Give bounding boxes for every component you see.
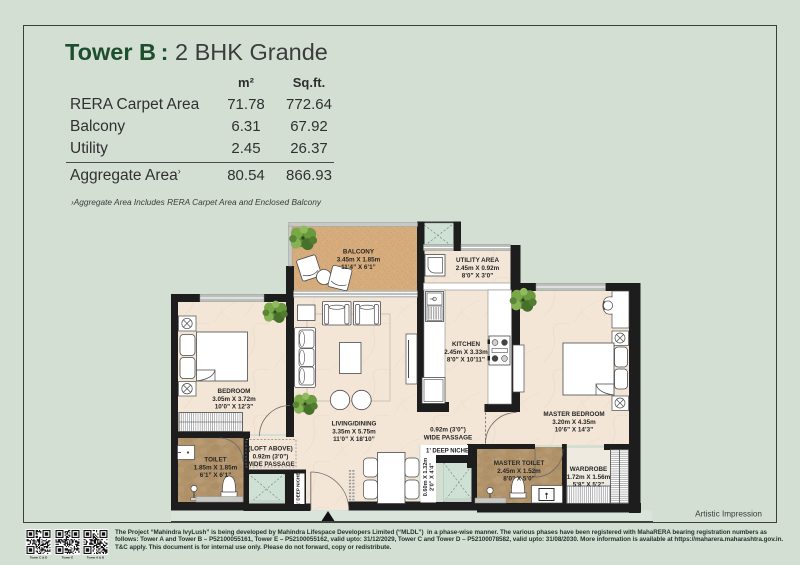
svg-text:Tower A & B: Tower A & B (87, 556, 105, 560)
svg-text:0.60m X 1.32m: 0.60m X 1.32m (423, 458, 429, 497)
svg-text:(LOFT ABOVE): (LOFT ABOVE) (248, 446, 293, 453)
svg-text:8’0” X 3’0”: 8’0” X 3’0” (462, 273, 494, 280)
svg-text:11’0” X 18’10”: 11’0” X 18’10” (333, 436, 375, 443)
svg-text:MASTER BEDROOM: MASTER BEDROOM (543, 411, 604, 418)
svg-text:8’0” X 10’11”: 8’0” X 10’11” (447, 357, 485, 364)
svg-text:5’8” X 5’2”: 5’8” X 5’2” (573, 482, 605, 489)
svg-text:LIVING/DINING: LIVING/DINING (332, 421, 377, 428)
svg-text:Artistic Impression: Artistic Impression (695, 510, 762, 519)
svg-text:WIDE PASSAGE: WIDE PASSAGE (424, 434, 473, 441)
svg-text:MASTER TOILET: MASTER TOILET (494, 460, 545, 467)
svg-text:3.05m X 3.72m: 3.05m X 3.72m (212, 396, 256, 403)
svg-text:3.20m X 4.35m: 3.20m X 4.35m (552, 419, 596, 426)
svg-text:1.85m X 1.85m: 1.85m X 1.85m (194, 464, 238, 471)
svg-text:10’0” X 12’3”: 10’0” X 12’3” (215, 404, 254, 411)
svg-text:WIDE PASSAGE: WIDE PASSAGE (246, 461, 295, 468)
svg-text:TOILET: TOILET (204, 457, 226, 464)
svg-text:WARDROBE: WARDROBE (570, 466, 607, 473)
svg-text:3.45m X 1.85m: 3.45m X 1.85m (337, 256, 381, 263)
svg-text:11’4” X 6’1”: 11’4” X 6’1” (341, 264, 376, 271)
svg-text:KITCHEN: KITCHEN (452, 341, 480, 348)
svg-text:10’6” X 14’3”: 10’6” X 14’3” (555, 427, 594, 434)
svg-text:1’ DEEP NICHE: 1’ DEEP NICHE (296, 473, 301, 506)
svg-text:UTILITY AREA: UTILITY AREA (456, 257, 499, 264)
svg-text:2.45m X 3.33m: 2.45m X 3.33m (444, 349, 488, 356)
svg-text:2’0” X 4’4”: 2’0” X 4’4” (430, 463, 436, 491)
svg-text:0.92m (3’0”): 0.92m (3’0”) (430, 427, 466, 434)
svg-text:1.72m X 1.56m: 1.72m X 1.56m (567, 474, 611, 481)
svg-text:6’1” X 6’1”: 6’1” X 6’1” (200, 472, 232, 479)
svg-text:Tower C & D: Tower C & D (30, 556, 48, 560)
svg-text:1’ DEEP NICHE: 1’ DEEP NICHE (426, 449, 469, 455)
svg-text:8’0” X 5’0”: 8’0” X 5’0” (503, 476, 535, 483)
svg-text:3.35m X 5.75m: 3.35m X 5.75m (332, 428, 376, 435)
svg-text:2.45m X 0.92m: 2.45m X 0.92m (456, 265, 500, 272)
svg-text:0.92m (3’0”): 0.92m (3’0”) (253, 453, 289, 460)
svg-text:2.45m X 1.52m: 2.45m X 1.52m (497, 468, 541, 475)
svg-text:BEDROOM: BEDROOM (218, 388, 251, 395)
svg-text:BALCONY: BALCONY (343, 249, 375, 256)
svg-text:Tower E: Tower E (62, 556, 73, 560)
